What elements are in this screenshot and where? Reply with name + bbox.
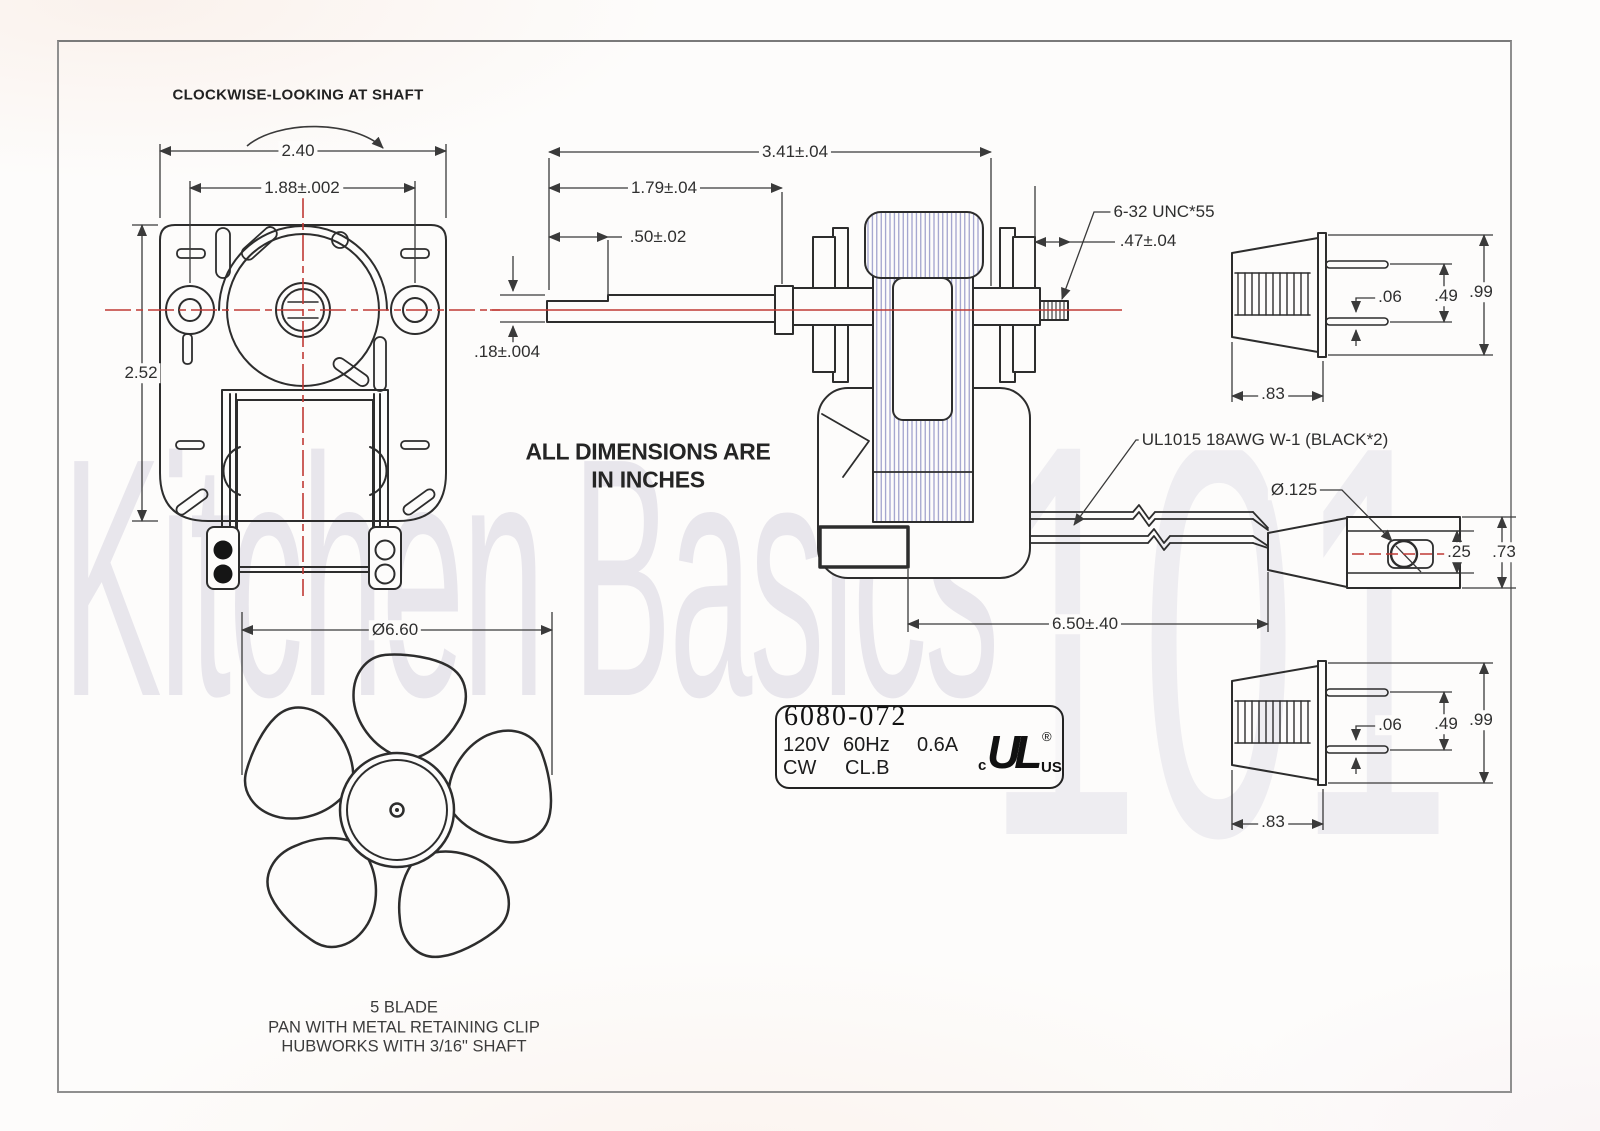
dim-connector-outer-height: .73 [1489, 542, 1519, 562]
dim-connector-inner-height: .25 [1444, 542, 1474, 562]
dim-side-overall-length: 3.41±.04 [759, 142, 831, 162]
nameplate-part-number: 6080-072 [784, 701, 907, 733]
ul-c-label: c [978, 757, 986, 774]
dim-side-lead-length: 6.50±.40 [1049, 614, 1121, 634]
nameplate-insulation-class: CL.B [845, 757, 889, 780]
nameplate-current: 0.6A [917, 734, 958, 757]
ul-certification-icon: c UL ® US [978, 731, 1064, 783]
fan-blade [439, 724, 559, 852]
dim-front-hole-spacing: 1.88±.002 [261, 178, 343, 198]
rotation-note: CLOCKWISE-LOOKING AT SHAFT [172, 87, 423, 104]
nameplate-rotation: CW [783, 757, 816, 780]
dim-plug-bottom-body-length: .83 [1258, 812, 1288, 832]
note-thread-spec: 6-32 UNC*55 [1110, 202, 1217, 222]
dim-plug-top-pin-thickness: .06 [1375, 287, 1405, 307]
dim-plug-top-height: .99 [1466, 282, 1496, 302]
units-note-line1: ALL DIMENSIONS ARE [525, 439, 770, 466]
dim-side-shaft-diameter: .18±.004 [471, 342, 543, 362]
dim-connector-hole-diameter: Ø.125 [1268, 480, 1320, 500]
dim-front-overall-width: 2.40 [278, 141, 317, 161]
drawing-sheet: Kitchen Basics 101 [0, 0, 1600, 1131]
fan-blade [345, 648, 470, 765]
dim-side-flat-length: .50±.02 [627, 227, 690, 247]
dim-fan-diameter: Ø6.60 [369, 620, 421, 640]
dim-side-shaft-length: 1.79±.04 [628, 178, 700, 198]
dim-plug-bottom-pin-spacing: .49 [1431, 714, 1461, 734]
nameplate-frequency: 60Hz [843, 734, 890, 757]
technical-drawing-svg [0, 0, 1600, 1131]
dim-front-overall-height: 2.52 [121, 363, 160, 383]
nameplate-voltage: 120V [783, 734, 830, 757]
ul-us-label: US [1041, 759, 1062, 776]
dim-side-stud-length: .47±.04 [1117, 231, 1180, 251]
dim-plug-top-pin-spacing: .49 [1431, 286, 1461, 306]
dim-plug-bottom-height: .99 [1466, 710, 1496, 730]
fan-drawing [232, 648, 559, 971]
ul-registered-label: ® [1042, 729, 1052, 744]
fan-caption-line2: PAN WITH METAL RETAINING CLIP [268, 1019, 540, 1038]
fan-caption-line3: HUBWORKS WITH 3/16" SHAFT [281, 1038, 526, 1057]
units-note-line2: IN INCHES [591, 467, 705, 494]
dim-plug-top-body-length: .83 [1258, 384, 1288, 404]
plug-top-drawing [1232, 233, 1388, 357]
note-wire-spec: UL1015 18AWG W-1 (BLACK*2) [1139, 430, 1392, 450]
dim-plug-bottom-pin-thickness: .06 [1375, 715, 1405, 735]
fan-caption-line1: 5 BLADE [370, 999, 438, 1018]
plug-bottom-drawing [1232, 661, 1388, 785]
ul-mark-label: UL [987, 725, 1036, 779]
